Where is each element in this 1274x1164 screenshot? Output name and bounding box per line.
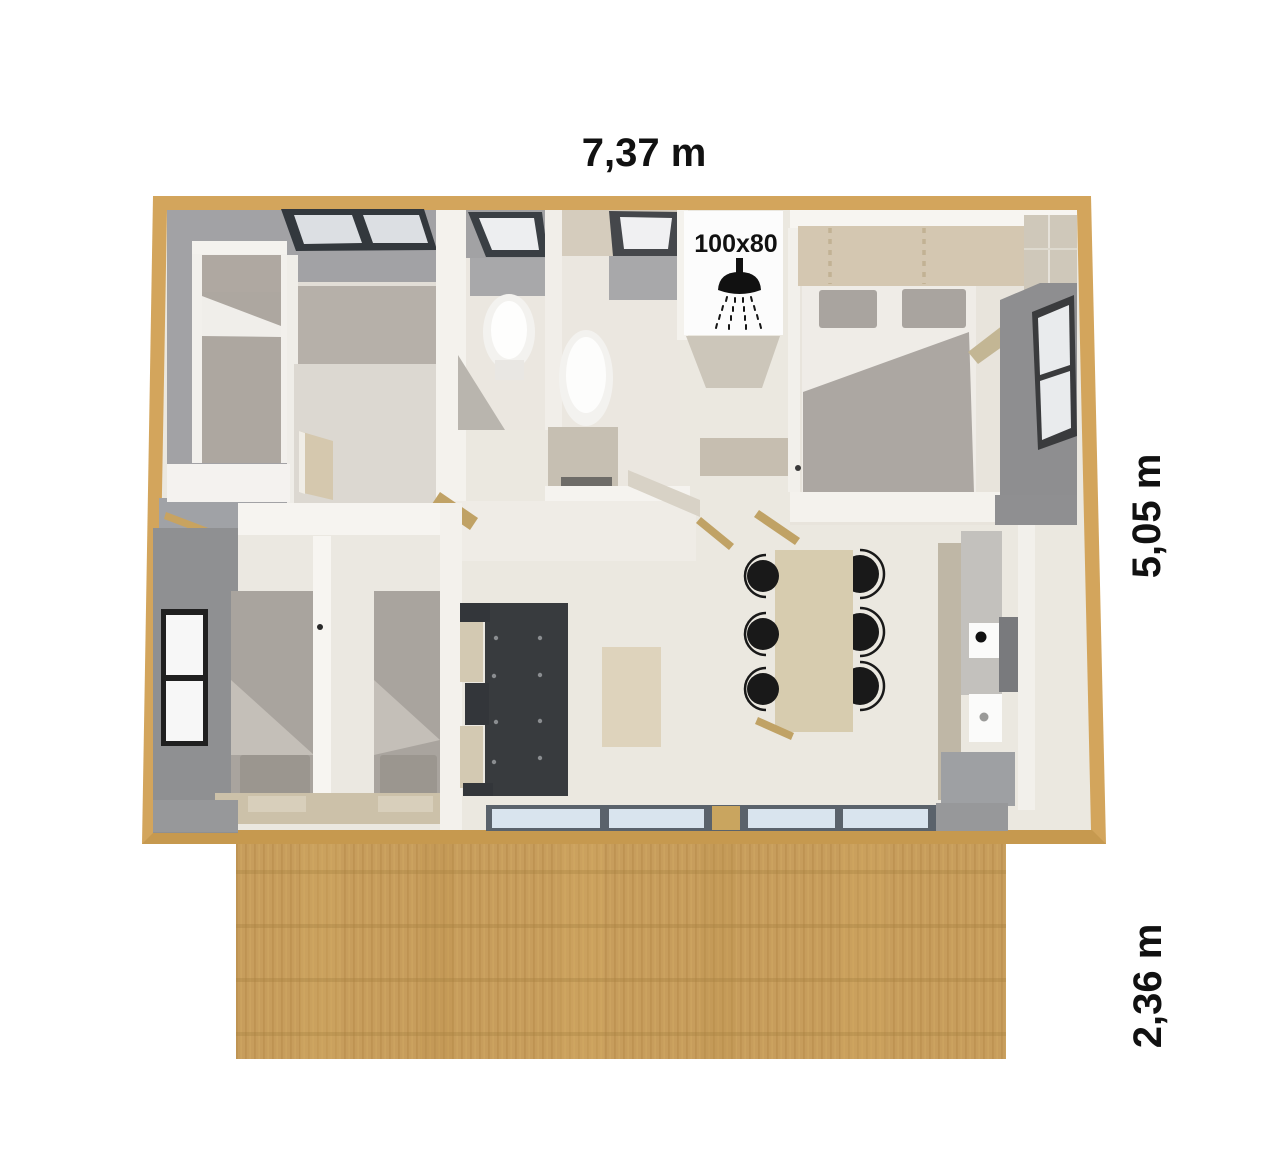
svg-text:2,36 m: 2,36 m — [1126, 924, 1170, 1049]
svg-text:100x80: 100x80 — [694, 230, 777, 258]
svg-text:5,05 m: 5,05 m — [1125, 454, 1169, 579]
svg-text:7,37 m: 7,37 m — [582, 131, 707, 175]
